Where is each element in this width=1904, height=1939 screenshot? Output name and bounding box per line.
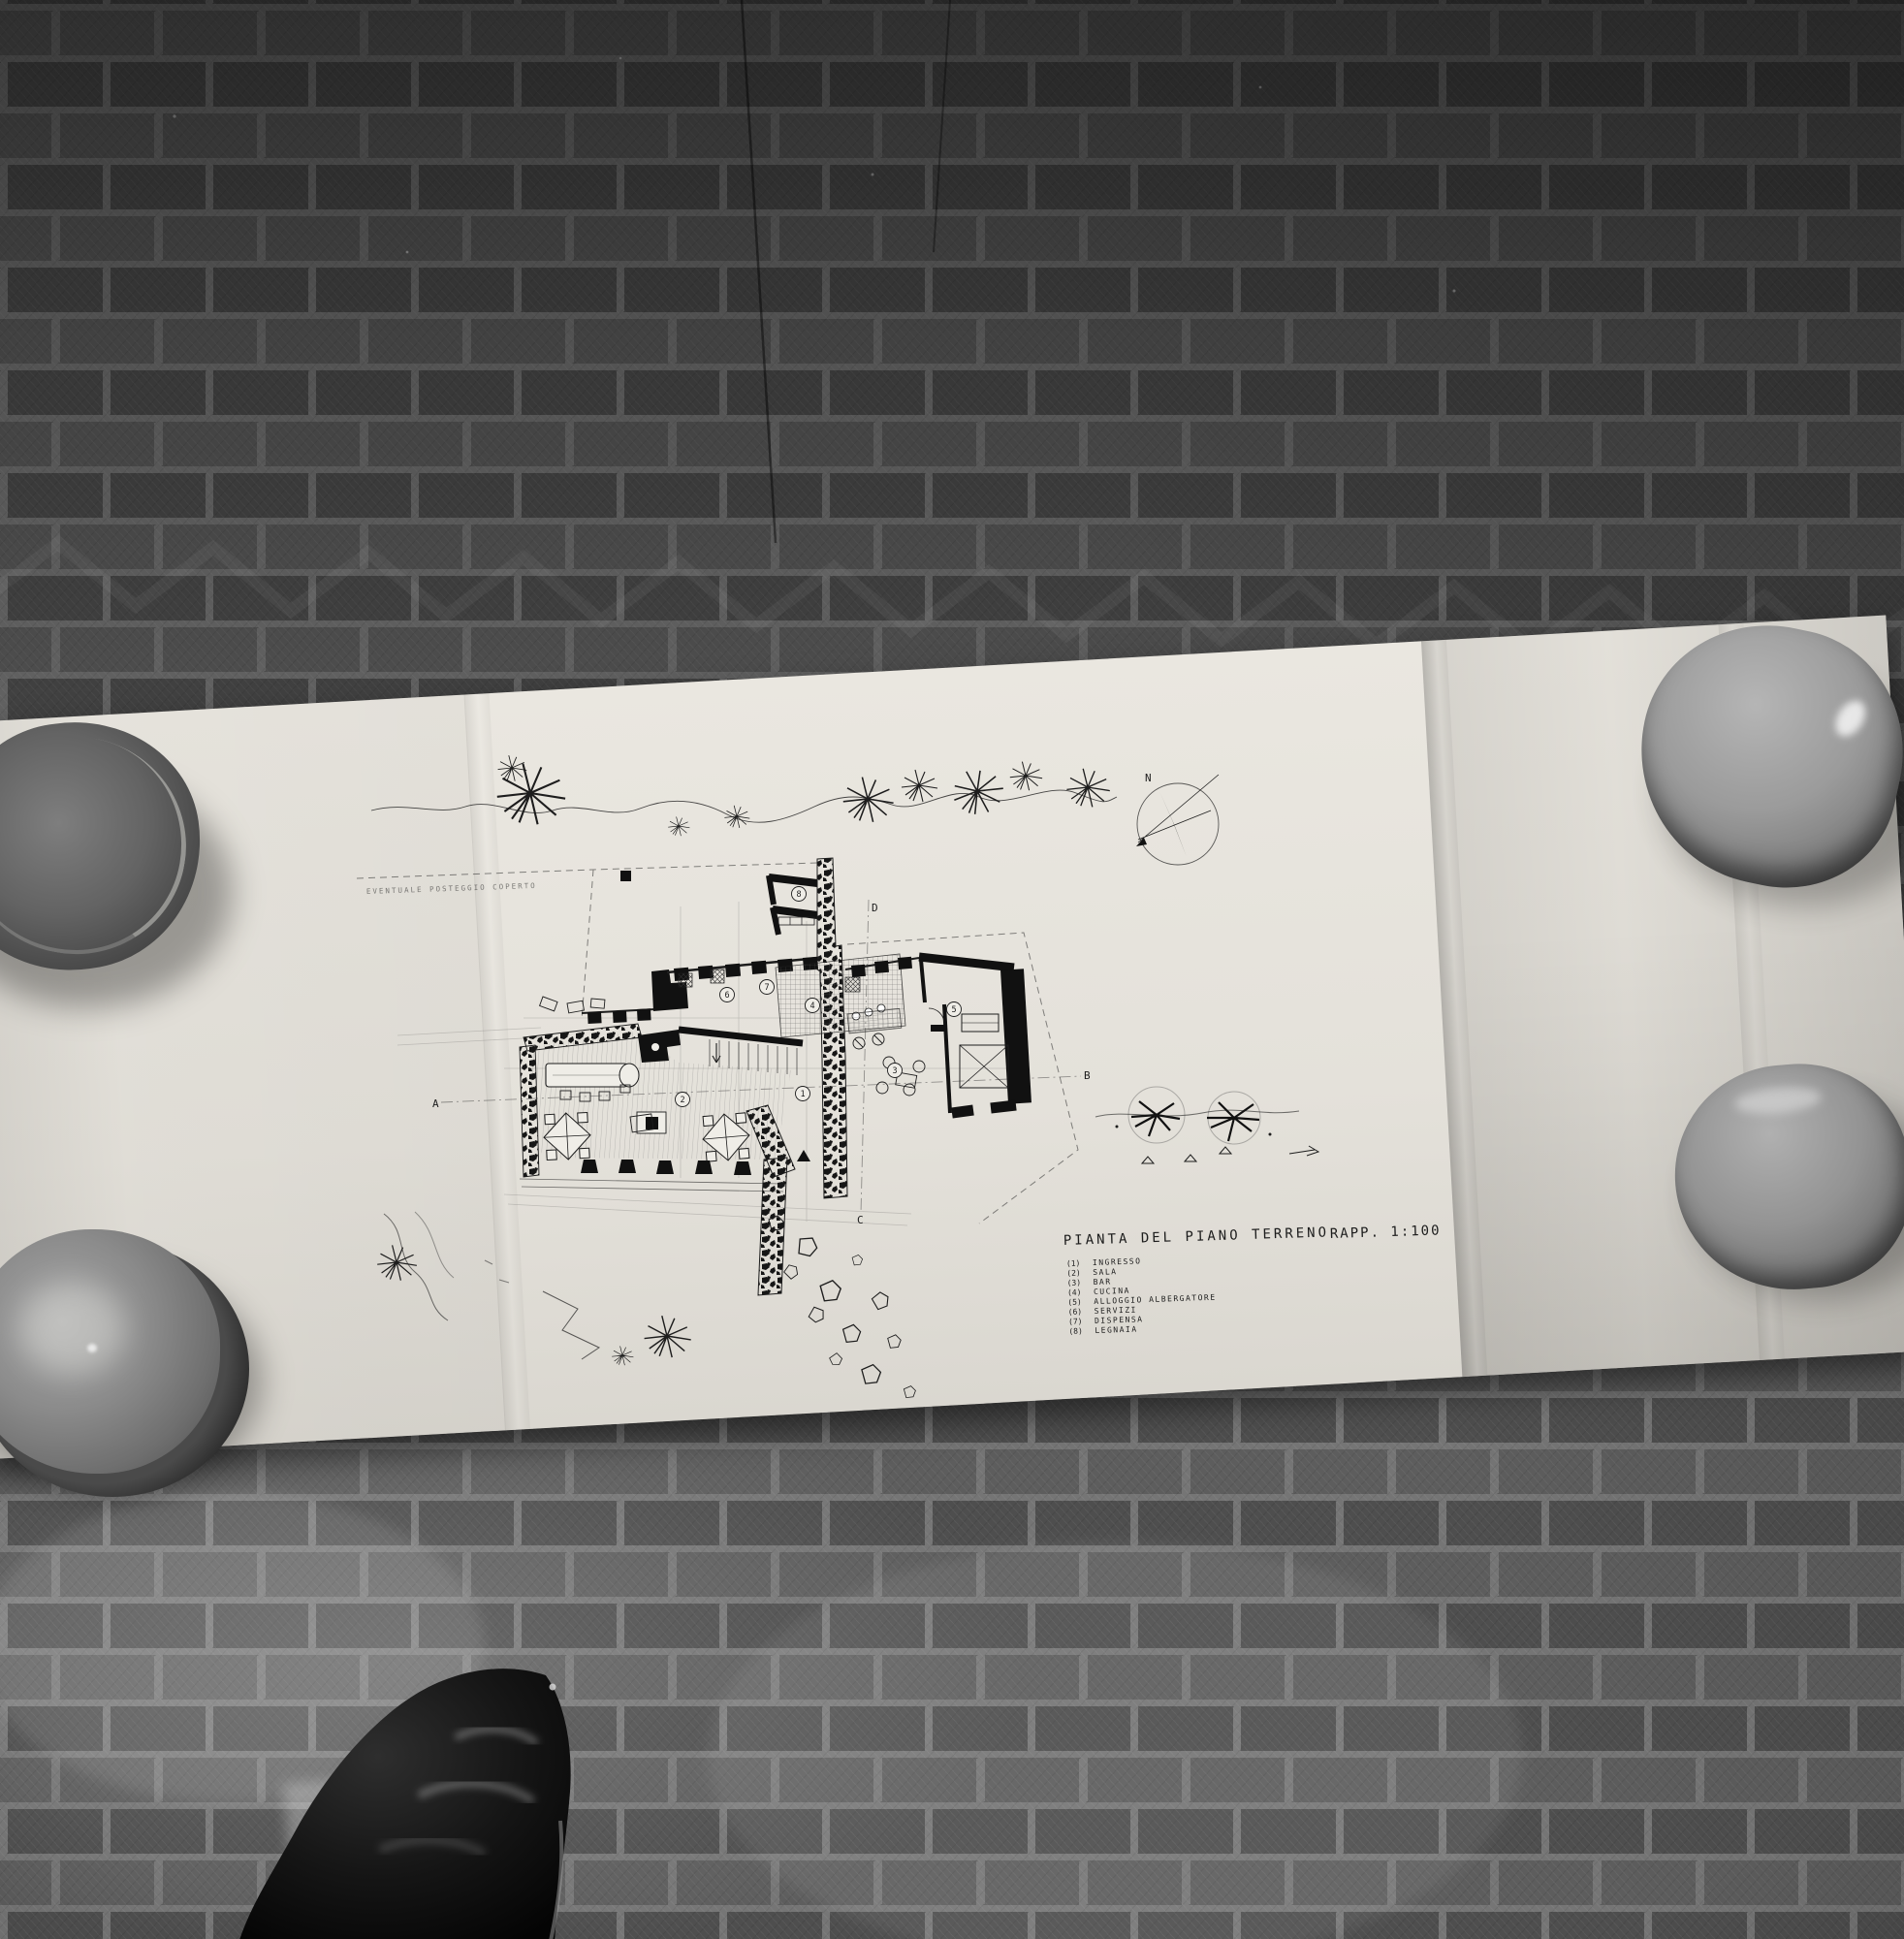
- shoe-overlay: [0, 0, 1904, 1939]
- leather-shoe-toe: [238, 1669, 571, 1939]
- photo-of-floor-plan-on-parquet: 1 2 3 4 5 6 7 8 A B C D N EVENTUALE POST…: [0, 0, 1904, 1939]
- toe-glint: [550, 1684, 556, 1691]
